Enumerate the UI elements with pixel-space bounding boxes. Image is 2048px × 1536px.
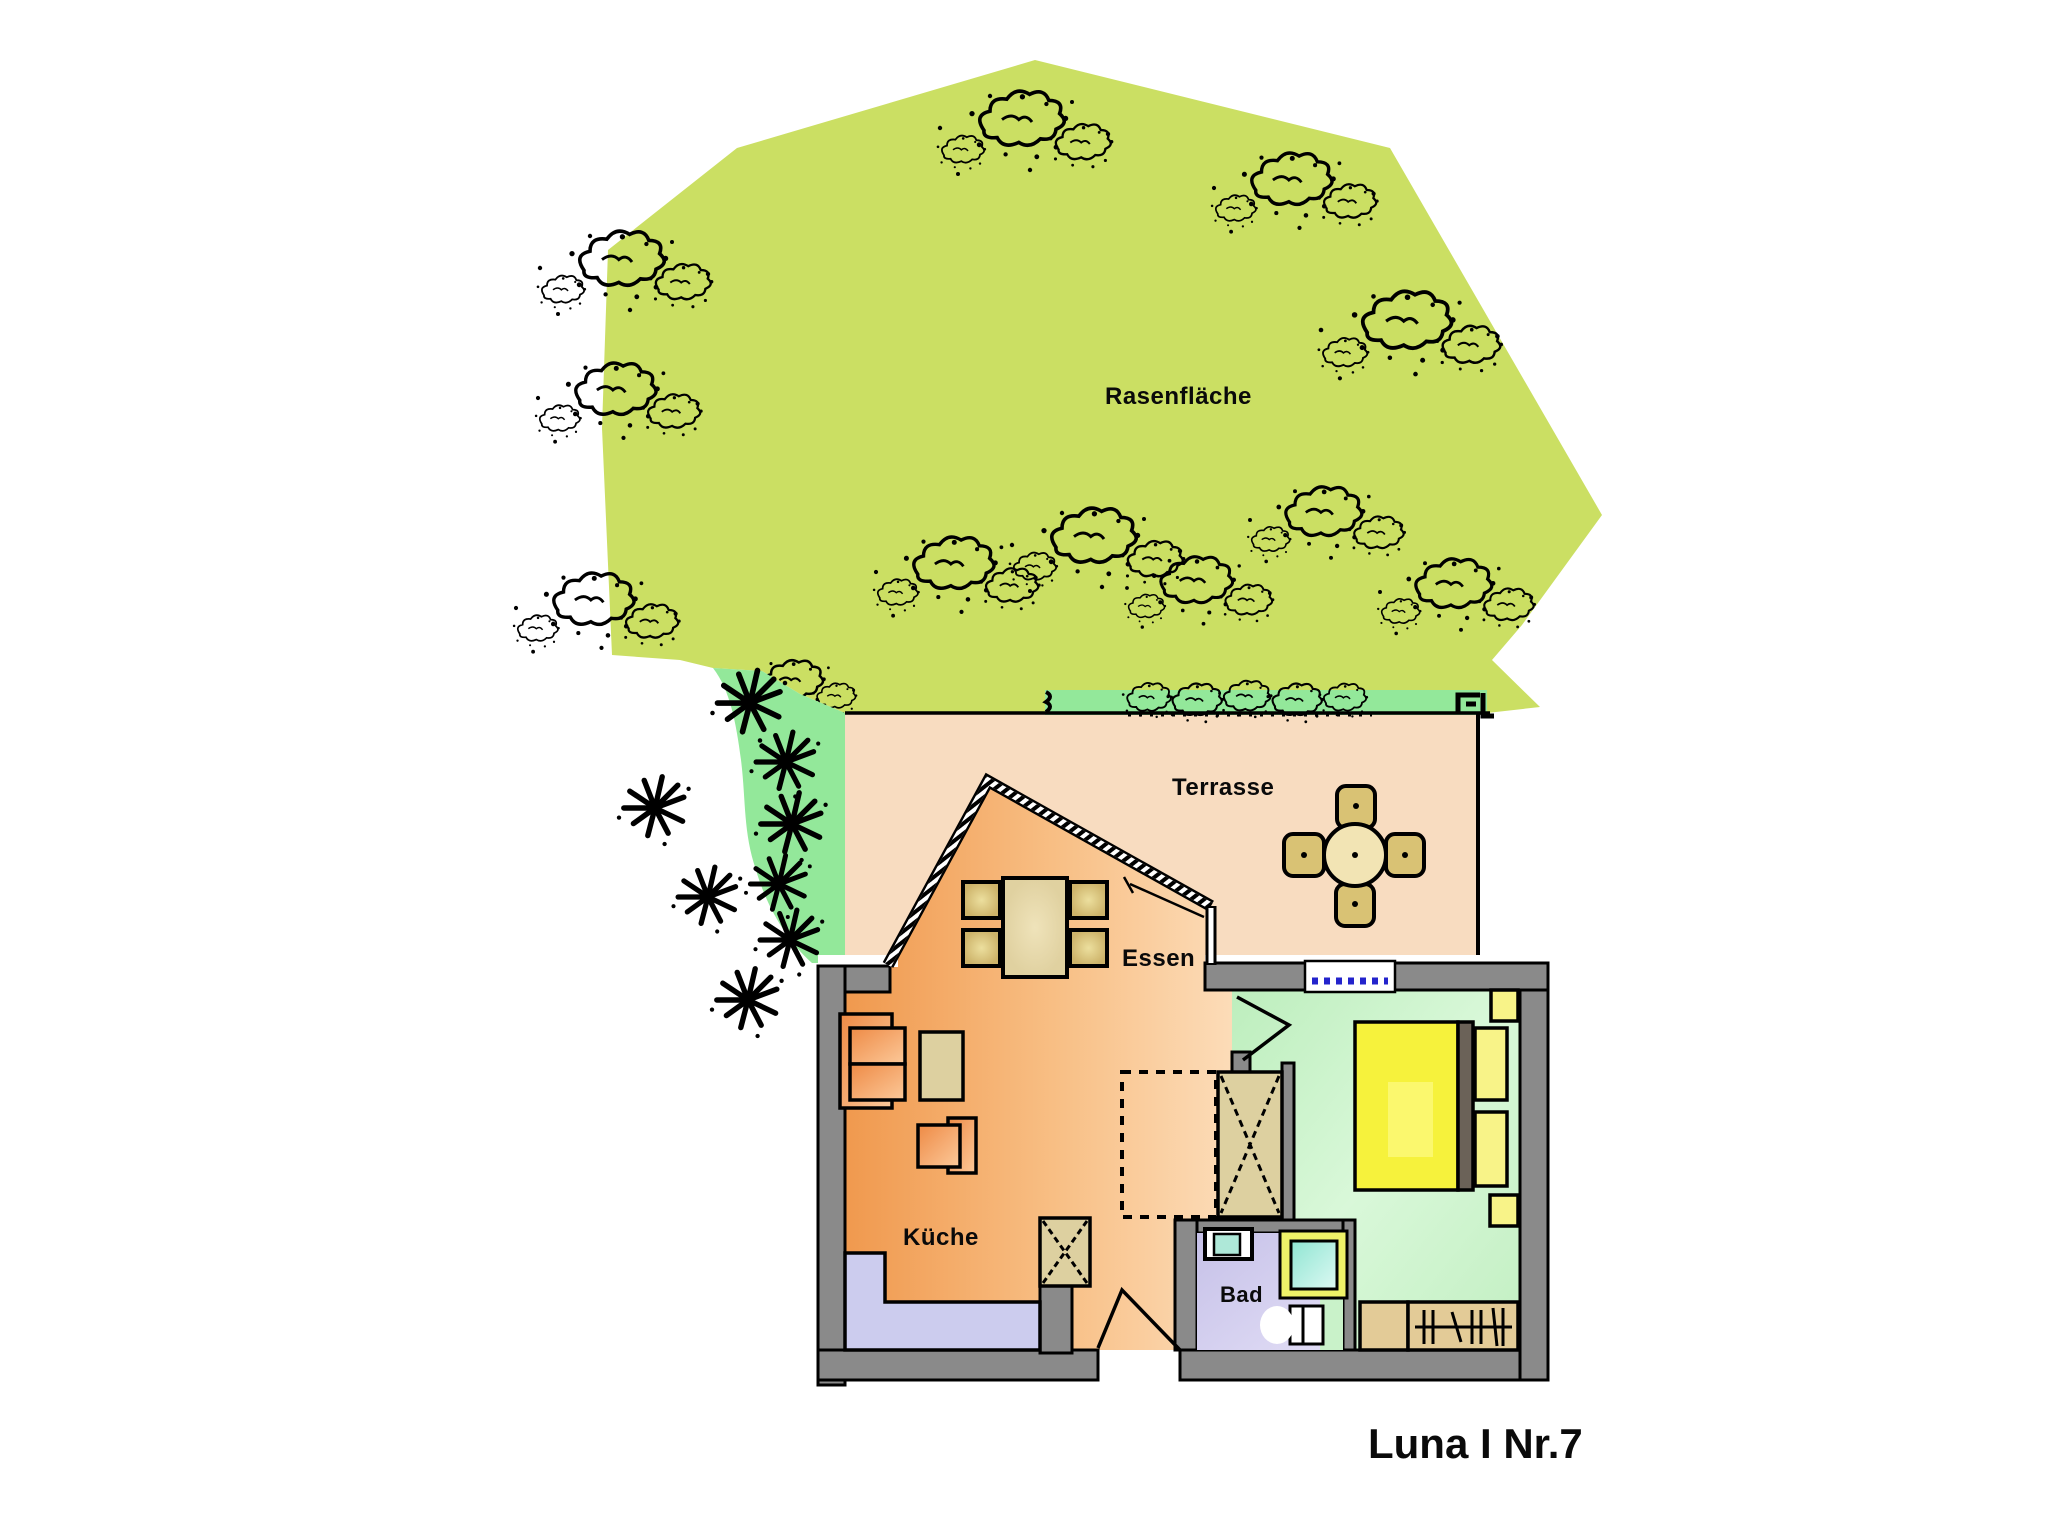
bath-shower [1280, 1231, 1347, 1298]
terrace-label: Terrasse [1172, 774, 1274, 801]
bed-blanket [1388, 1082, 1433, 1157]
coffee-table [920, 1032, 963, 1100]
dining-chair-tl [963, 882, 1000, 918]
wall-right [1520, 963, 1548, 1380]
wall-bedroom-west [1282, 1063, 1294, 1223]
dining-table [1003, 878, 1067, 977]
bedroom-bench [1360, 1302, 1408, 1350]
wall-entry-stub [1040, 1285, 1072, 1353]
sofa-cushion-1 [850, 1028, 905, 1064]
wardrobe-hanger-rail [1408, 1302, 1518, 1350]
kitchen-label: Küche [903, 1224, 979, 1251]
bed-headboard [1458, 1022, 1473, 1190]
nightstand-bottom [1490, 1195, 1518, 1226]
floor-plan-drawing: Rasenfläche [0, 0, 2048, 1536]
bedroom-window [1305, 961, 1395, 992]
bath-sink [1205, 1229, 1252, 1259]
dining-chair-bl [963, 930, 1000, 966]
bath-label: Bad [1220, 1282, 1263, 1307]
kitchen-cabinet-x [1040, 1218, 1090, 1286]
dining-chair-tr [1070, 882, 1107, 918]
dining-chair-br [1070, 930, 1107, 966]
lawn-area: Rasenfläche [602, 60, 1602, 713]
lawn-polygon [602, 60, 1602, 713]
bath-toilet [1260, 1306, 1323, 1344]
lawn-label: Rasenfläche [1105, 383, 1252, 410]
hall-wardrobe [1218, 1072, 1282, 1217]
pillow-1 [1475, 1028, 1507, 1100]
armchair-seat [918, 1125, 960, 1167]
wall-bottom-right [1180, 1350, 1548, 1380]
dining-label: Essen [1122, 945, 1195, 972]
nightstand-top [1491, 990, 1518, 1021]
wall-bath-left [1175, 1220, 1197, 1350]
floor-plan-canvas: Rasenfläche [0, 0, 2048, 1536]
plan-title: Luna I Nr.7 [1368, 1420, 1583, 1467]
pillow-2 [1475, 1112, 1507, 1186]
sofa-cushion-2 [850, 1064, 905, 1100]
